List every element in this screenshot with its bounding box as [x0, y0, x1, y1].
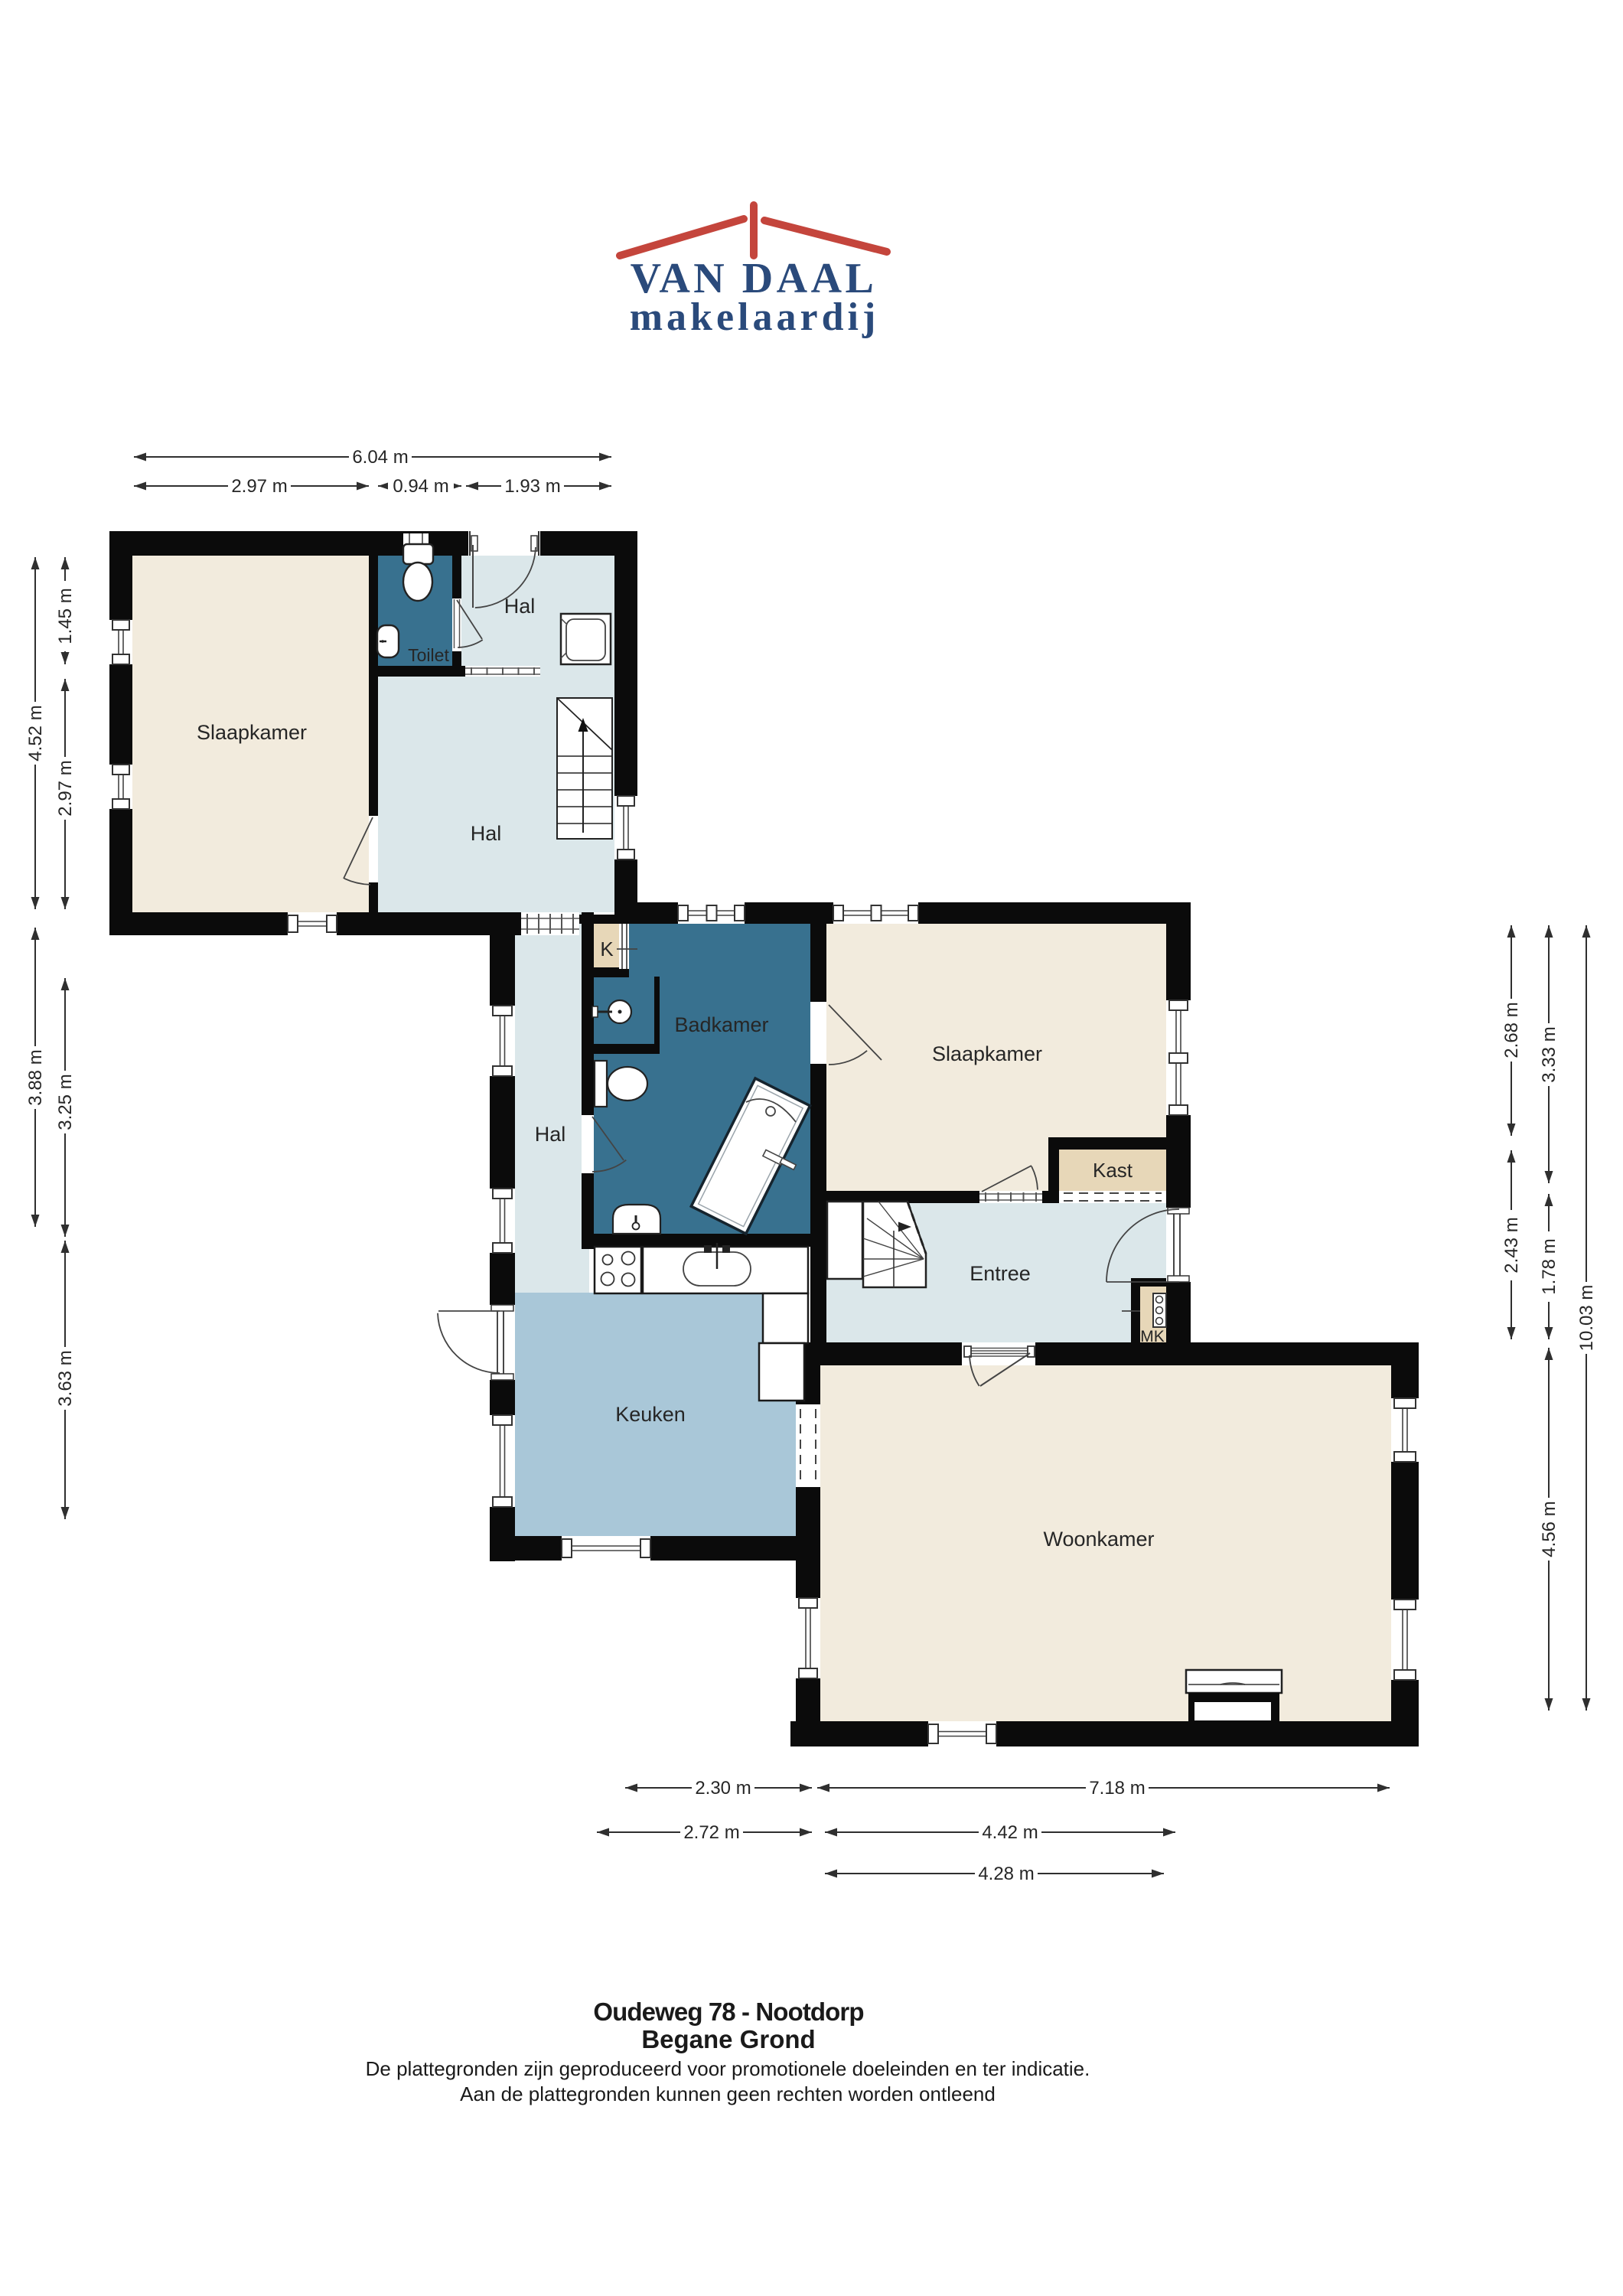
svg-text:10.03 m: 10.03 m — [1576, 1285, 1597, 1352]
svg-text:3.88 m: 3.88 m — [25, 1049, 46, 1105]
svg-text:De plattegronden zijn geproduc: De plattegronden zijn geproduceerd voor … — [366, 2057, 1090, 2080]
svg-text:2.68 m: 2.68 m — [1501, 1002, 1522, 1058]
svg-text:2.97 m: 2.97 m — [55, 760, 76, 816]
svg-text:7.18 m: 7.18 m — [1089, 1778, 1145, 1799]
svg-text:K: K — [600, 938, 614, 960]
svg-text:Begane Grond: Begane Grond — [641, 2025, 815, 2053]
svg-text:1.93 m: 1.93 m — [504, 476, 560, 497]
svg-text:3.63 m: 3.63 m — [55, 1350, 76, 1406]
svg-text:6.04 m: 6.04 m — [352, 447, 408, 468]
svg-text:Aan de plattegronden kunnen ge: Aan de plattegronden kunnen geen rechten… — [460, 2082, 996, 2105]
svg-text:4.28 m: 4.28 m — [978, 1864, 1034, 1884]
svg-text:2.30 m: 2.30 m — [695, 1778, 751, 1799]
svg-text:1.45 m: 1.45 m — [55, 588, 76, 644]
svg-text:4.52 m: 4.52 m — [25, 705, 46, 761]
svg-text:Badkamer: Badkamer — [674, 1013, 768, 1036]
svg-text:4.56 m: 4.56 m — [1539, 1501, 1559, 1557]
svg-text:1.78 m: 1.78 m — [1539, 1238, 1559, 1294]
svg-text:3.33 m: 3.33 m — [1539, 1026, 1559, 1082]
svg-text:2.43 m: 2.43 m — [1501, 1217, 1522, 1273]
svg-text:Oudeweg 78 - Nootdorp: Oudeweg 78 - Nootdorp — [593, 1998, 863, 2026]
svg-text:Keuken: Keuken — [615, 1403, 686, 1426]
svg-text:2.72 m: 2.72 m — [683, 1822, 739, 1843]
svg-text:Slaapkamer: Slaapkamer — [932, 1042, 1042, 1065]
svg-text:Toilet: Toilet — [408, 645, 449, 665]
svg-text:Hal: Hal — [504, 595, 536, 618]
svg-text:Woonkamer: Woonkamer — [1043, 1528, 1154, 1551]
svg-text:2.97 m: 2.97 m — [231, 476, 287, 497]
svg-text:0.94 m: 0.94 m — [393, 476, 448, 497]
svg-text:makelaardij: makelaardij — [630, 295, 880, 339]
svg-text:3.25 m: 3.25 m — [55, 1074, 76, 1130]
svg-text:MK: MK — [1140, 1328, 1165, 1345]
svg-text:Slaapkamer: Slaapkamer — [197, 721, 307, 744]
svg-text:4.42 m: 4.42 m — [982, 1822, 1038, 1843]
svg-text:Hal: Hal — [471, 822, 502, 845]
svg-text:Kast: Kast — [1093, 1159, 1133, 1182]
svg-text:Hal: Hal — [535, 1123, 566, 1146]
svg-text:Entree: Entree — [970, 1262, 1031, 1285]
